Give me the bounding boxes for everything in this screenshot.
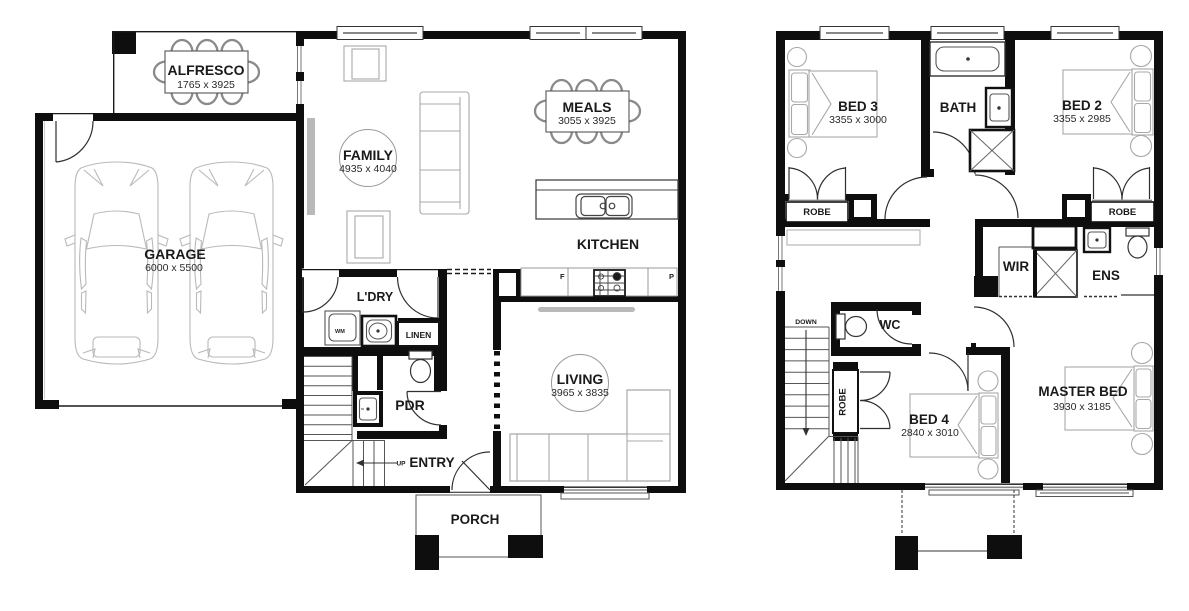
svg-text:ROBE: ROBE <box>838 388 849 415</box>
svg-text:PDR: PDR <box>395 397 425 413</box>
svg-text:6000 x 5500: 6000 x 5500 <box>145 262 203 274</box>
svg-text:2840 x 3010: 2840 x 3010 <box>901 427 959 439</box>
svg-text:GARAGE: GARAGE <box>144 246 205 262</box>
svg-text:UP: UP <box>396 461 406 468</box>
svg-text:ENS: ENS <box>1092 268 1120 283</box>
svg-text:ROBE: ROBE <box>1109 207 1136 218</box>
svg-text:BED 4: BED 4 <box>909 412 949 427</box>
svg-text:WC: WC <box>880 318 901 332</box>
svg-text:BED 3: BED 3 <box>838 99 878 114</box>
svg-text:MEALS: MEALS <box>563 99 612 115</box>
svg-text:L'DRY: L'DRY <box>357 290 394 304</box>
svg-text:BATH: BATH <box>940 100 977 115</box>
svg-text:MASTER BED: MASTER BED <box>1038 384 1128 399</box>
svg-text:3355 x 2985: 3355 x 2985 <box>1053 113 1111 125</box>
svg-text:WM: WM <box>335 329 345 335</box>
svg-text:LINEN: LINEN <box>406 330 432 340</box>
svg-text:3965 x 3835: 3965 x 3835 <box>551 387 609 399</box>
svg-text:BED 2: BED 2 <box>1062 98 1102 113</box>
svg-text:1765 x 3925: 1765 x 3925 <box>177 79 235 91</box>
svg-text:4935 x 4040: 4935 x 4040 <box>339 163 397 175</box>
svg-text:ENTRY: ENTRY <box>409 455 454 470</box>
svg-text:DOWN: DOWN <box>795 319 817 326</box>
svg-text:WIR: WIR <box>1003 259 1029 274</box>
svg-text:3930 x 3185: 3930 x 3185 <box>1053 401 1111 413</box>
svg-text:3055 x 3925: 3055 x 3925 <box>558 115 616 127</box>
svg-text:ROBE: ROBE <box>803 207 830 218</box>
svg-text:KITCHEN: KITCHEN <box>577 236 639 252</box>
svg-text:PORCH: PORCH <box>451 512 500 527</box>
svg-text:LIVING: LIVING <box>557 371 604 387</box>
svg-text:FAMILY: FAMILY <box>343 147 394 163</box>
svg-text:ALFRESCO: ALFRESCO <box>168 62 245 78</box>
svg-text:F: F <box>560 272 565 281</box>
svg-text:3355 x 3000: 3355 x 3000 <box>829 114 887 126</box>
svg-text:P: P <box>669 272 674 281</box>
